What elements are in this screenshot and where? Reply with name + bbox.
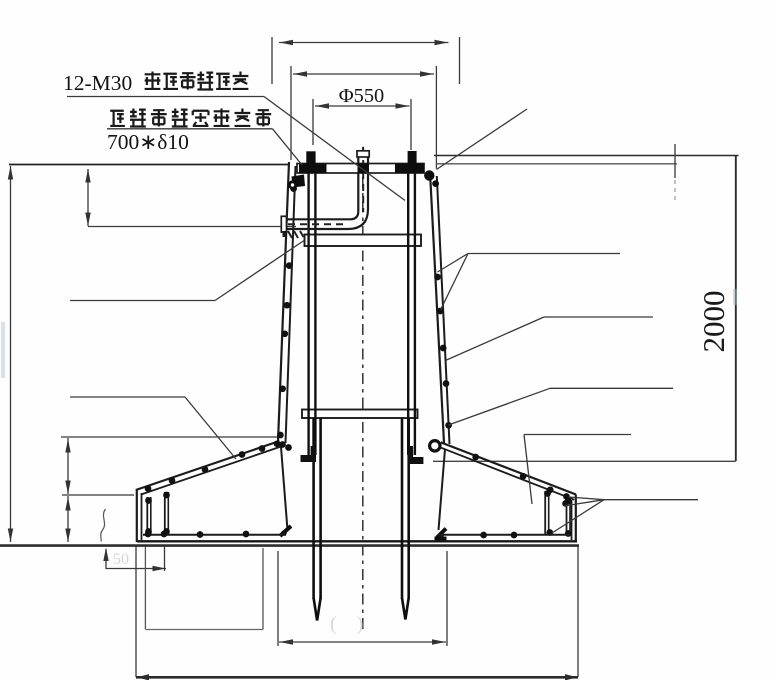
svg-text:( ): ( ) xyxy=(330,613,363,635)
svg-text:12-M30: 12-M30 xyxy=(63,71,132,95)
svg-text:Φ550: Φ550 xyxy=(339,85,385,107)
svg-text:700∗δ10: 700∗δ10 xyxy=(107,130,189,154)
svg-text:2000: 2000 xyxy=(696,291,731,353)
svg-text:50: 50 xyxy=(113,551,129,568)
